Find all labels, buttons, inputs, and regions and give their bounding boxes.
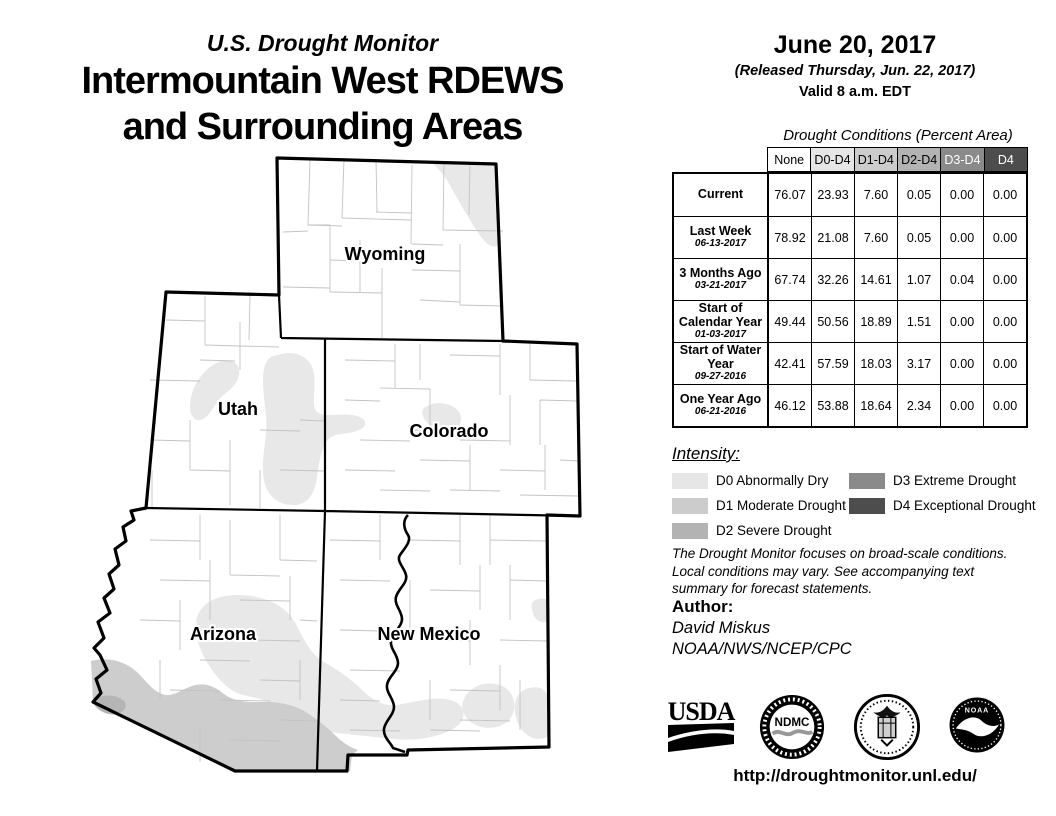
cell-d3-d4: 0.00 <box>940 301 983 342</box>
column-header-d2-d4: D2-D4 <box>897 147 941 172</box>
cell-d4: 0.00 <box>983 301 1026 342</box>
cell-d0-d4: 57.59 <box>811 343 854 384</box>
cell-d2-d4: 2.34 <box>897 385 940 426</box>
author-block: Author: David Miskus NOAA/NWS/NCEP/CPC <box>672 596 852 660</box>
cell-none: 67.74 <box>769 259 811 300</box>
column-header-none: None <box>767 147 811 172</box>
d0-swatch <box>672 473 708 489</box>
cell-d2-d4: 3.17 <box>897 343 940 384</box>
state-label-colorado: Colorado <box>410 421 489 441</box>
cell-d3-d4: 0.00 <box>940 385 983 426</box>
noaa-logo: NOAA <box>946 694 1008 756</box>
cell-d1-d4: 18.03 <box>854 343 897 384</box>
legend-item-d4: D4 Exceptional Drought <box>849 493 1036 518</box>
cell-d0-d4: 21.08 <box>811 217 854 258</box>
cell-none: 78.92 <box>769 217 811 258</box>
legend-column-right: D3 Extreme Drought D4 Exceptional Drough… <box>849 468 1036 518</box>
table-row: Start of Water Year 09-27-2016 42.41 57.… <box>674 342 1026 384</box>
cell-none: 46.12 <box>769 385 811 426</box>
drought-monitor-report: U.S. Drought Monitor Intermountain West … <box>0 0 1056 816</box>
d0-patch-utah-central <box>263 353 365 505</box>
cell-d4: 0.00 <box>983 174 1026 216</box>
column-header-d1-d4: D1-D4 <box>854 147 898 172</box>
cell-d1-d4: 18.64 <box>854 385 897 426</box>
row-label: Start of Water Year 09-27-2016 <box>674 343 769 384</box>
cell-d1-d4: 7.60 <box>854 174 897 216</box>
legend-item-d3: D3 Extreme Drought <box>849 468 1036 493</box>
d1-swatch <box>672 498 708 514</box>
cell-d2-d4: 1.07 <box>897 259 940 300</box>
doc-logo <box>853 693 921 761</box>
cell-d3-d4: 0.00 <box>940 343 983 384</box>
cell-d2-d4: 1.51 <box>897 301 940 342</box>
row-label: Last Week 06-13-2017 <box>674 217 769 258</box>
author-name: David Miskus <box>672 618 852 639</box>
cell-d0-d4: 50.56 <box>811 301 854 342</box>
row-label: One Year Ago 06-21-2016 <box>674 385 769 426</box>
cell-none: 76.07 <box>769 174 811 216</box>
cell-d1-d4: 18.89 <box>854 301 897 342</box>
cell-d4: 0.00 <box>983 385 1026 426</box>
usda-logo: USDA <box>666 698 736 754</box>
cell-d2-d4: 0.05 <box>897 217 940 258</box>
table-row: Current 76.07 23.93 7.60 0.05 0.00 0.00 <box>674 174 1026 216</box>
disclaimer-text: The Drought Monitor focuses on broad-sca… <box>672 545 1026 598</box>
cell-d0-d4: 23.93 <box>811 174 854 216</box>
state-label-arizona: Arizona <box>190 624 257 644</box>
cell-none: 49.44 <box>769 301 811 342</box>
state-label-wyoming: Wyoming <box>345 244 426 264</box>
cell-none: 42.41 <box>769 343 811 384</box>
cell-d3-d4: 0.00 <box>940 174 983 216</box>
ndmc-logo: NDMC <box>758 693 826 761</box>
state-label-utah: Utah <box>218 399 258 419</box>
table-row: One Year Ago 06-21-2016 46.12 53.88 18.6… <box>674 384 1026 426</box>
cell-d0-d4: 53.88 <box>811 385 854 426</box>
d3-swatch <box>849 473 885 489</box>
column-header-d0-d4: D0-D4 <box>810 147 854 172</box>
author-org: NOAA/NWS/NCEP/CPC <box>672 639 852 660</box>
state-label-new-mexico: New Mexico <box>377 624 480 644</box>
cell-d0-d4: 32.26 <box>811 259 854 300</box>
table-caption: Drought Conditions (Percent Area) <box>762 127 1034 144</box>
author-heading: Author: <box>672 596 852 618</box>
row-label: Current <box>674 174 769 216</box>
table-row: Start of Calendar Year 01-03-2017 49.44 … <box>674 300 1026 342</box>
cell-d3-d4: 0.04 <box>940 259 983 300</box>
legend-column-left: D0 Abnormally Dry D1 Moderate Drought D2… <box>672 468 846 543</box>
legend-item-d1: D1 Moderate Drought <box>672 493 846 518</box>
cell-d2-d4: 0.05 <box>897 174 940 216</box>
legend-item-d2: D2 Severe Drought <box>672 518 846 543</box>
table-row: Last Week 06-13-2017 78.92 21.08 7.60 0.… <box>674 216 1026 258</box>
svg-text:NOAA: NOAA <box>965 707 989 715</box>
cell-d1-d4: 7.60 <box>854 217 897 258</box>
d2-swatch <box>672 523 708 539</box>
row-label: 3 Months Ago 03-21-2017 <box>674 259 769 300</box>
cell-d1-d4: 14.61 <box>854 259 897 300</box>
cell-d4: 0.00 <box>983 343 1026 384</box>
d4-swatch <box>849 498 885 514</box>
legend-item-d0: D0 Abnormally Dry <box>672 468 846 493</box>
svg-text:USDA: USDA <box>668 698 736 726</box>
cell-d4: 0.00 <box>983 259 1026 300</box>
column-header-d3-d4: D3-D4 <box>940 147 984 172</box>
cell-d4: 0.00 <box>983 217 1026 258</box>
column-header-d4: D4 <box>984 147 1028 172</box>
legend-heading: Intensity: <box>672 444 740 464</box>
table-header-row: None D0-D4 D1-D4 D2-D4 D3-D4 D4 <box>767 147 1028 172</box>
county-lines-colorado <box>345 344 579 496</box>
table-row: 3 Months Ago 03-21-2017 67.74 32.26 14.6… <box>674 258 1026 300</box>
row-label: Start of Calendar Year 01-03-2017 <box>674 301 769 342</box>
cell-d3-d4: 0.00 <box>940 217 983 258</box>
svg-text:NDMC: NDMC <box>775 716 811 729</box>
drought-conditions-table: Current 76.07 23.93 7.60 0.05 0.00 0.00 … <box>672 172 1028 428</box>
drought-monitor-url: http://droughtmonitor.unl.edu/ <box>660 766 1050 786</box>
